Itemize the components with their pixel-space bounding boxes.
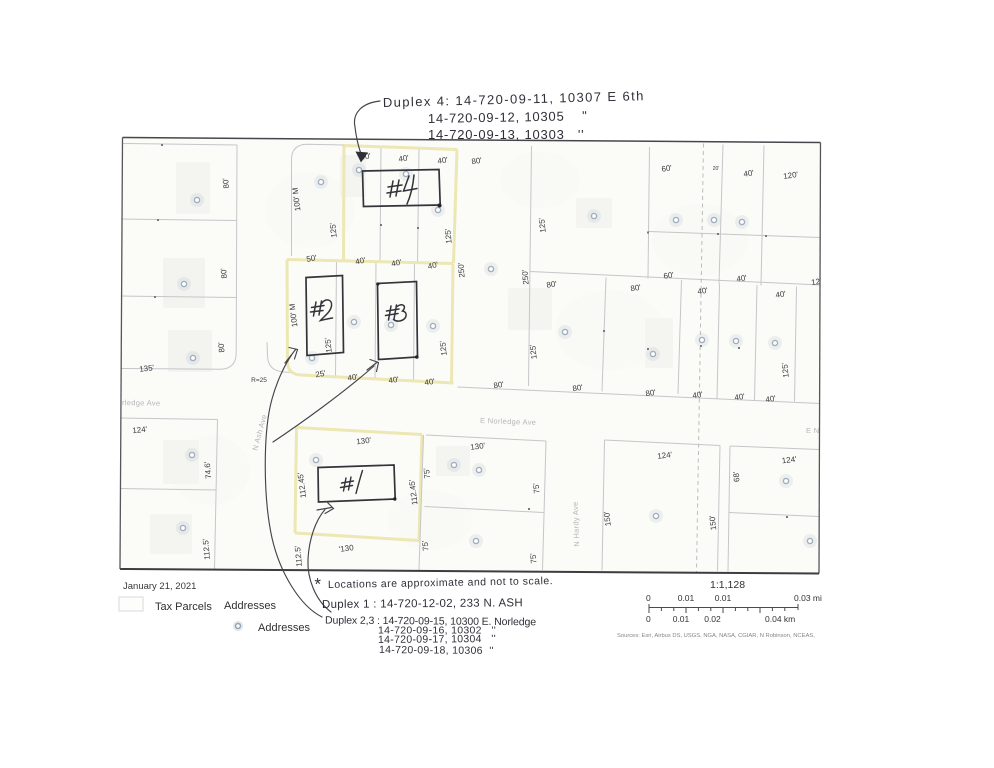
svg-text:124': 124' [657, 450, 673, 461]
svg-text:Addresses: Addresses [224, 600, 276, 612]
svg-text:75': 75' [531, 482, 541, 494]
svg-text:14-720-09-13, 10303 '': 14-720-09-13, 10303 '' [428, 127, 584, 142]
svg-text:60': 60' [663, 270, 675, 280]
svg-text:40': 40' [734, 392, 746, 402]
svg-text:14-720-09-18, 10306 '': 14-720-09-18, 10306 '' [379, 644, 494, 657]
svg-text:150': 150' [602, 510, 613, 526]
svg-text:80': 80' [572, 383, 584, 393]
svg-text:0.01: 0.01 [678, 593, 695, 603]
svg-text:0.04 km: 0.04 km [765, 614, 795, 624]
svg-text:75': 75' [422, 467, 432, 479]
svg-text:60': 60' [661, 163, 673, 173]
svg-text:250': 250' [456, 262, 466, 278]
svg-text:150': 150' [708, 514, 719, 530]
svg-text:'130: '130 [338, 543, 354, 554]
svg-text:125': 125' [323, 337, 334, 353]
svg-text:125': 125' [443, 228, 453, 244]
svg-text:40': 40' [736, 273, 748, 283]
svg-text:0: 0 [646, 614, 651, 624]
svg-text:0.03 mi: 0.03 mi [794, 593, 822, 603]
svg-text:80': 80' [645, 388, 657, 398]
svg-text:40': 40' [347, 372, 359, 382]
svg-text:20': 20' [713, 166, 720, 172]
svg-text:40': 40' [388, 375, 400, 385]
svg-text:40': 40' [775, 289, 787, 299]
svg-text:125': 125' [528, 343, 539, 359]
svg-text:1:1,128: 1:1,128 [710, 579, 745, 591]
svg-text:Sources: Esri, Airbus DS, USGS: Sources: Esri, Airbus DS, USGS, NGA, NAS… [617, 633, 815, 639]
svg-text:80': 80' [219, 267, 229, 279]
svg-text:80': 80' [630, 283, 642, 293]
svg-text:130': 130' [356, 436, 372, 447]
svg-text:0.02: 0.02 [704, 614, 721, 624]
svg-text:40': 40' [697, 286, 709, 296]
svg-text:135': 135' [139, 363, 155, 374]
svg-text:80': 80' [216, 341, 226, 353]
svg-text:rledge Ave: rledge Ave [122, 398, 160, 408]
svg-text:40': 40' [765, 394, 777, 404]
svg-text:124': 124' [781, 455, 797, 466]
svg-text:14-720-09-12, 10305 ": 14-720-09-12, 10305 " [428, 108, 588, 126]
svg-text:125': 125' [438, 340, 449, 356]
svg-text:0.01: 0.01 [715, 593, 732, 603]
svg-text:Addresses: Addresses [258, 622, 310, 634]
svg-text:130': 130' [470, 441, 486, 452]
svg-text:80': 80' [546, 279, 558, 289]
svg-text:40': 40' [437, 155, 449, 165]
svg-text:68': 68' [731, 471, 741, 483]
svg-text:40': 40' [424, 377, 436, 387]
svg-text:74.6': 74.6' [203, 461, 213, 479]
svg-text:January 21, 2021: January 21, 2021 [123, 581, 196, 592]
svg-text:124': 124' [132, 425, 148, 436]
svg-text:E N: E N [806, 426, 819, 435]
svg-text:125': 125' [328, 222, 339, 238]
svg-text:80': 80' [493, 380, 505, 390]
svg-text:40': 40' [692, 390, 704, 400]
svg-text:250': 250' [520, 269, 530, 285]
svg-text:75': 75' [420, 540, 430, 552]
svg-text:Duplex 1 : 14-720-12-02, 233 N: Duplex 1 : 14-720-12-02, 233 N. ASH [322, 597, 523, 611]
svg-text:25': 25' [315, 369, 327, 380]
svg-text:N Hardy Ave: N Hardy Ave [571, 501, 582, 547]
svg-text:75': 75' [528, 552, 538, 564]
svg-text:80': 80' [221, 177, 231, 189]
svg-text:50': 50' [306, 253, 318, 264]
svg-text:125': 125' [780, 362, 791, 378]
svg-text:40': 40' [398, 153, 410, 163]
svg-text:R=25: R=25 [251, 377, 267, 384]
svg-text:40': 40' [743, 168, 755, 178]
svg-text:112.5': 112.5' [201, 538, 212, 560]
svg-text:0: 0 [646, 593, 651, 603]
svg-text:0.01: 0.01 [673, 614, 690, 624]
svg-text:80': 80' [471, 156, 483, 166]
svg-text:125': 125' [537, 217, 548, 233]
svg-text:Tax Parcels: Tax Parcels [155, 601, 212, 613]
svg-text:112.5': 112.5' [293, 545, 304, 567]
